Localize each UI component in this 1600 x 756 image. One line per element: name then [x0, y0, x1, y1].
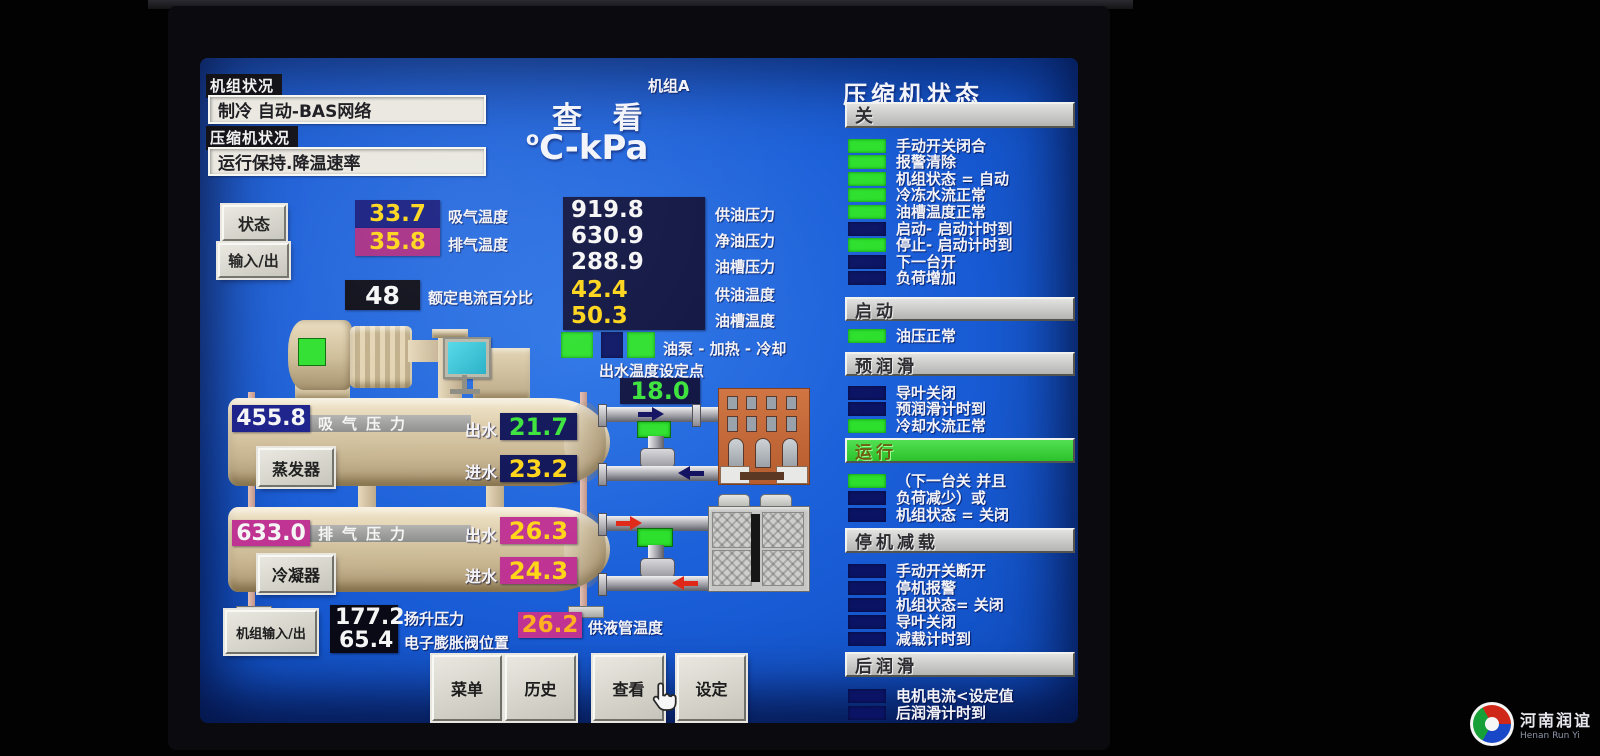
watermark-text-cn: 河南润谊: [1520, 707, 1592, 731]
building-band: [740, 472, 784, 480]
lift-eev-panel: 177.2 65.4: [330, 605, 398, 653]
evap-out-value: 21.7: [500, 413, 577, 440]
hmi-screen: 机组状况 机组A 制冷 自动-BAS网络 压缩机状况 运行保持.降温速率 查 看…: [200, 58, 1078, 723]
eev-position-label: 电子膨胀阀位置: [404, 632, 509, 653]
units-title: oC-kPa: [526, 128, 648, 168]
motor-run-indicator: [298, 338, 326, 366]
status-indicator: [848, 402, 886, 416]
unit-io-button[interactable]: 机组输入/出: [225, 610, 317, 654]
evap-in-value: 23.2: [500, 455, 577, 482]
compressor-status-field: 运行保持.降温速率: [208, 147, 486, 176]
status-indicator: [848, 329, 886, 343]
photo-canvas: 机组状况 机组A 制冷 自动-BAS网络 压缩机状况 运行保持.降温速率 查 看…: [0, 0, 1600, 756]
status-label: 油压正常: [896, 325, 956, 346]
status-indicator: [848, 508, 886, 522]
cond-out-label: 出水: [465, 522, 497, 546]
cursor-hand-icon: [648, 680, 680, 716]
pipe-flange: [692, 404, 701, 427]
status-label: 后润滑计时到: [896, 702, 986, 723]
watermark: 河南润谊 Henan Run Yi: [1470, 702, 1592, 746]
watermark-logo-icon: [1470, 702, 1514, 746]
fla-percent-label: 额定电流百分比: [428, 287, 533, 308]
pipe-flange: [598, 463, 607, 486]
status-button[interactable]: 状态: [222, 205, 286, 241]
discharge-temp-label: 排气温度: [448, 234, 508, 255]
chw-return-arrow: [690, 471, 704, 476]
panel-display-graphic: [443, 337, 491, 379]
status-indicator: [848, 564, 886, 578]
liquid-line-temp-value: 26.2: [518, 612, 582, 638]
building-arch-window: [728, 438, 744, 468]
building-window: [786, 396, 797, 410]
status-indicator: [848, 706, 886, 720]
building-arch-window: [782, 438, 798, 468]
pipe-flange: [598, 513, 607, 536]
lift-pressure-value: 177.2: [335, 605, 405, 630]
building-window: [746, 396, 757, 410]
oil-supply-pressure: 919.8: [571, 197, 644, 223]
heater-indicator: [601, 332, 623, 358]
compressor-graphic: [350, 326, 412, 388]
building-window: [727, 396, 738, 410]
watermark-text-en: Henan Run Yi: [1520, 731, 1592, 741]
lift-pressure-label: 扬升压力: [404, 608, 464, 629]
cw-valve: [640, 558, 675, 578]
oil-pump-row-label: 油泵 - 加热 - 冷却: [663, 338, 786, 359]
chw-flow-arrow: [638, 412, 652, 417]
panel-display-screen: [448, 342, 486, 374]
building-window: [766, 416, 777, 432]
tower-panel: [762, 550, 804, 586]
oil-readings-panel: 919.8 630.9 288.9 42.4 50.3: [563, 197, 705, 330]
tower-slot: [751, 514, 760, 582]
status-indicator: [848, 689, 886, 703]
oil-supply-temp-label: 供油温度: [715, 284, 775, 305]
chw-return-arrow-head: [678, 466, 690, 480]
status-indicator: [848, 615, 886, 629]
evap-pressure-strip: 吸气压力: [310, 415, 471, 432]
net-oil-pressure-label: 净油压力: [715, 230, 775, 251]
pipe-flange: [598, 573, 607, 596]
cond-in-label: 进水: [465, 563, 497, 587]
display-base: [450, 389, 480, 394]
building-window: [766, 396, 777, 410]
status-indicator: [848, 271, 886, 285]
evap-in-label: 进水: [465, 459, 497, 483]
chw-valve: [640, 448, 675, 468]
status-label: 机组状态 = 关闭: [896, 504, 1009, 525]
io-button[interactable]: 输入/出: [218, 243, 289, 278]
status-indicator: [848, 581, 886, 595]
tower-panel: [712, 512, 752, 548]
building-arch-window: [755, 438, 771, 468]
section-header-shutdown-unload: 停机减载: [845, 528, 1075, 553]
status-indicator: [848, 474, 886, 488]
building-window: [786, 416, 797, 432]
setup-button[interactable]: 设定: [677, 655, 746, 721]
evap-pressure-value: 455.8: [232, 405, 310, 432]
fla-percent-value: 48: [345, 280, 420, 310]
discharge-temp-value: 35.8: [355, 228, 440, 256]
status-label: 冷却水流正常: [896, 415, 986, 436]
cond-pressure-value: 633.0: [232, 520, 310, 546]
status-indicator: [848, 155, 886, 169]
cw-return-pipe: [598, 576, 716, 591]
net-oil-pressure: 630.9: [571, 223, 644, 249]
eev-position-value: 65.4: [339, 628, 393, 653]
sump-pressure: 288.9: [571, 249, 644, 275]
menu-button[interactable]: 菜单: [432, 655, 502, 721]
status-indicator: [848, 491, 886, 505]
lwt-setpoint-value: 18.0: [620, 378, 700, 404]
evaporator-button[interactable]: 蒸发器: [258, 448, 334, 487]
unit-status-field: 制冷 自动-BAS网络: [208, 95, 486, 124]
unit-tag: 机组A: [648, 75, 690, 96]
sump-temp-label: 油槽温度: [715, 310, 775, 331]
oil-supply-pressure-label: 供油压力: [715, 204, 775, 225]
condenser-button[interactable]: 冷凝器: [258, 555, 334, 593]
cw-return-arrow-head: [672, 576, 684, 590]
status-indicator: [848, 632, 886, 646]
compressor-state-field: 关: [845, 102, 1075, 128]
tower-panel: [712, 550, 752, 586]
section-header-run: 运行: [845, 438, 1075, 463]
suction-temp-label: 吸气温度: [448, 206, 508, 227]
cond-out-value: 26.3: [500, 517, 577, 544]
degree-sup: o: [526, 128, 539, 150]
building-window: [727, 416, 738, 432]
section-header-prelube: 预润滑: [845, 352, 1075, 376]
section-header-postlube: 后润滑: [845, 652, 1075, 677]
oil-pump-indicator: [561, 332, 593, 358]
tower-panel: [762, 512, 804, 548]
liquid-line-temp-label: 供液管温度: [588, 617, 663, 638]
status-label: 负荷增加: [896, 267, 956, 288]
cond-in-value: 24.3: [500, 557, 577, 584]
cw-return-arrow: [684, 581, 698, 586]
cooling-indicator: [627, 332, 655, 358]
cw-flow-arrow: [616, 521, 630, 526]
sump-pressure-label: 油槽压力: [715, 256, 775, 277]
status-indicator: [848, 419, 886, 433]
status-indicator: [848, 238, 886, 252]
sump-temp: 50.3: [571, 303, 628, 329]
building-window: [746, 416, 757, 432]
status-indicator: [848, 205, 886, 219]
chw-flow-arrow-head: [652, 407, 664, 421]
oil-supply-temp: 42.4: [571, 277, 628, 303]
pipe-flange: [598, 404, 607, 427]
status-indicator: [848, 598, 886, 612]
suction-temp-value: 33.7: [355, 200, 440, 228]
status-indicator: [848, 188, 886, 202]
section-header-start: 启动: [845, 297, 1075, 321]
status-label: 减载计时到: [896, 628, 971, 649]
evap-out-label: 出水: [465, 417, 497, 441]
history-button[interactable]: 历史: [505, 655, 576, 721]
cond-pressure-strip: 排气压力: [310, 525, 471, 542]
